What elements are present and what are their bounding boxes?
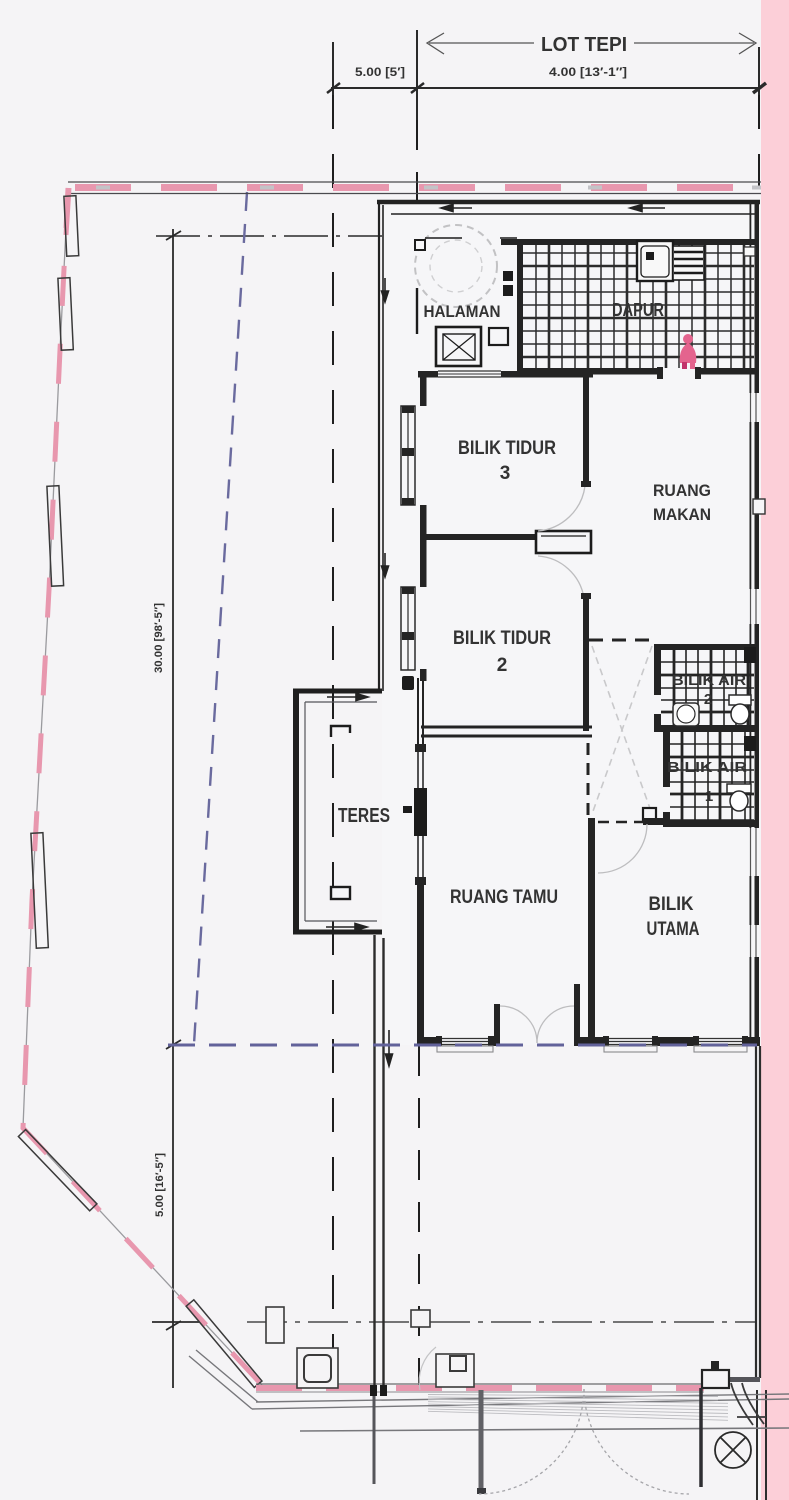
svg-text:BILIK TIDUR: BILIK TIDUR: [453, 628, 551, 649]
svg-text:DAPUR: DAPUR: [612, 300, 664, 320]
svg-text:4.00 [13′-1″]: 4.00 [13′-1″]: [549, 65, 627, 79]
svg-text:BILIK TIDUR: BILIK TIDUR: [458, 438, 556, 459]
svg-text:5.00 [5′]: 5.00 [5′]: [355, 65, 405, 79]
svg-text:RUANG TAMU: RUANG TAMU: [450, 887, 558, 908]
svg-text:BILIK: BILIK: [649, 894, 694, 915]
svg-text:5.00 [16′-5″]: 5.00 [16′-5″]: [154, 1153, 166, 1217]
svg-text:2: 2: [704, 691, 712, 708]
svg-text:1: 1: [705, 788, 713, 805]
svg-text:BILIK AIR: BILIK AIR: [667, 759, 747, 776]
svg-text:MAKAN: MAKAN: [653, 505, 711, 524]
svg-text:2: 2: [497, 655, 508, 676]
svg-text:3: 3: [500, 463, 511, 484]
svg-text:HALAMAN: HALAMAN: [424, 302, 501, 321]
svg-text:BILIK AIR: BILIK AIR: [672, 672, 746, 689]
svg-text:30.00 [98′-5″]: 30.00 [98′-5″]: [153, 603, 165, 673]
svg-text:TERES: TERES: [338, 805, 390, 827]
svg-text:RUANG: RUANG: [653, 481, 711, 500]
svg-text:UTAMA: UTAMA: [647, 919, 700, 940]
svg-text:LOT TEPI: LOT TEPI: [541, 34, 627, 56]
